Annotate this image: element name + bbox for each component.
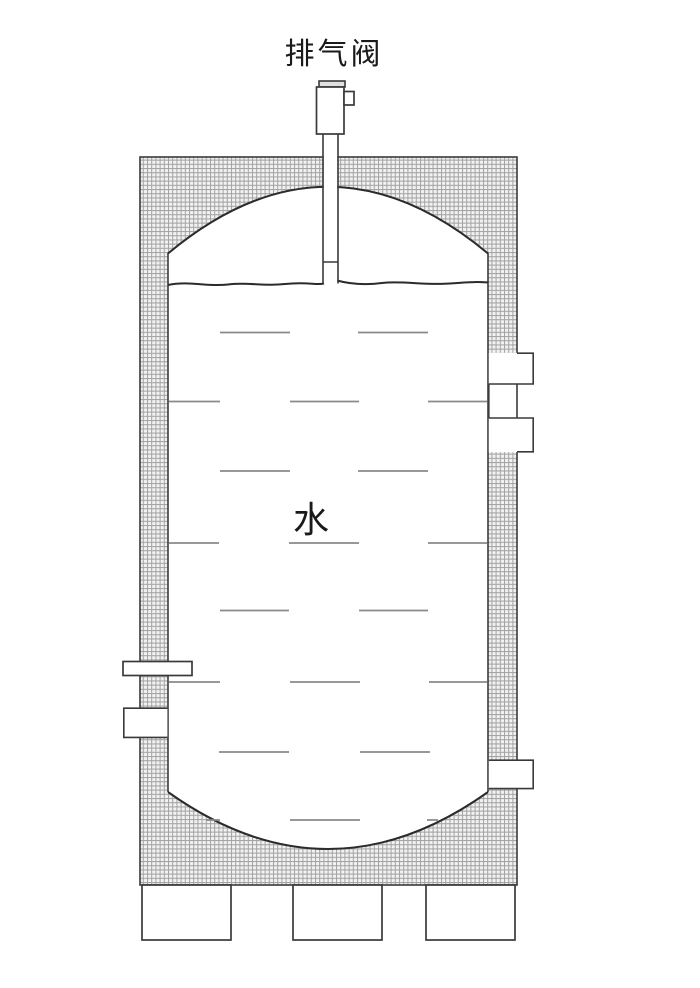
valve-body [317,87,345,134]
water-label: 水 [293,500,329,541]
valve-side-port [344,92,354,106]
water-surface-line [337,281,488,285]
support-leg [426,885,515,940]
nozzle-right-lower [489,760,534,789]
diagram-title: 排气阀 [285,37,384,72]
flange-left [123,662,192,676]
exhaust-valve [317,81,355,134]
support-legs [142,885,515,940]
support-leg [293,885,382,940]
nozzle-left-lower [124,708,168,738]
water-ripples [169,333,488,821]
water-surface-line [168,283,324,285]
water-tank-diagram: 排气阀 水 [0,0,700,988]
support-leg [142,885,231,940]
nozzle-right-upper [489,353,534,452]
tank-diagram-canvas: 排气阀 水 [0,0,700,988]
valve-cap [319,81,345,87]
vent-pipe [323,134,338,284]
